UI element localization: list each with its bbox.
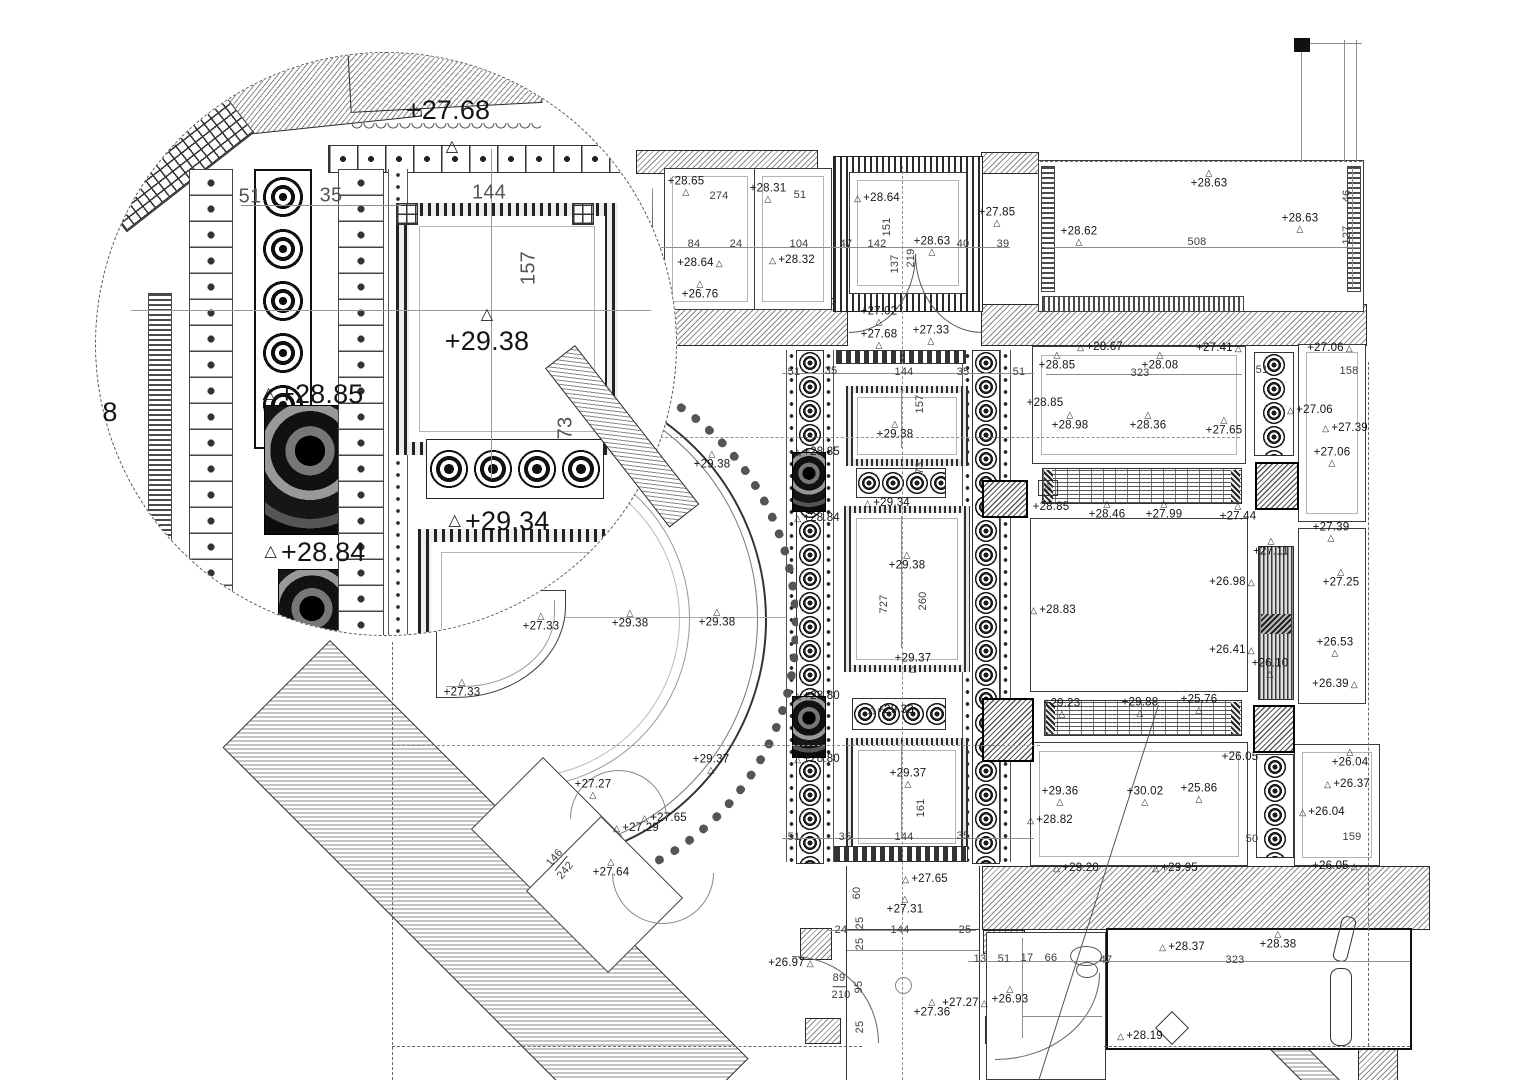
elevation-label: △+27.39	[1322, 422, 1368, 434]
label-text: +28.38	[1260, 938, 1297, 950]
dimension-label: 144	[891, 925, 910, 937]
level-triangle-icon: △	[1075, 238, 1082, 247]
label-text: 47	[840, 239, 853, 251]
label-text: +27.06	[1307, 342, 1344, 354]
elevation-label: △+29.38	[889, 550, 926, 571]
elevation-label: △+27.06	[1314, 446, 1351, 467]
elevation-label: +27.06△	[1307, 342, 1353, 354]
label-text: +26.98	[1209, 576, 1246, 588]
dimension-label: 137	[890, 255, 902, 274]
dimension-label: 323	[1226, 955, 1245, 967]
level-triangle-icon: △	[769, 256, 776, 265]
label-text: +27.06	[1296, 404, 1333, 416]
elevation-label: △+27.85	[979, 206, 1016, 227]
elevation-label: △+29.38	[694, 449, 731, 470]
level-triangle-icon: △	[1346, 747, 1353, 756]
label-text: 144	[895, 367, 914, 379]
level-triangle-icon: △	[264, 544, 277, 560]
elevation-label: △+28.32	[769, 254, 815, 266]
elevation-label: △+29.95	[1152, 862, 1198, 874]
level-triangle-icon: △	[1328, 459, 1335, 468]
elevation-label: +26.41△	[1209, 644, 1255, 656]
dimension-label: 127	[1342, 226, 1354, 245]
level-triangle-icon: △	[1077, 343, 1084, 352]
level-triangle-icon: △	[864, 499, 871, 508]
level-triangle-icon: △	[1058, 710, 1065, 719]
elevation-label: △+28.85	[262, 380, 363, 408]
dimension-label: 35	[839, 832, 852, 844]
label-text: +28.46	[1089, 508, 1126, 520]
dimension-label: 73	[556, 417, 577, 440]
level-triangle-icon: △	[716, 259, 723, 268]
label-text: +29.34	[873, 497, 910, 509]
annotation-layer: +27.68△5135144157△+29.38△+28.85△+28.84△+…	[0, 0, 1528, 1080]
elevation-label: △+27.99	[1146, 499, 1183, 520]
label-text: +26.41	[1209, 644, 1246, 656]
elevation-label: △+28.63	[914, 235, 951, 256]
dimension-label: 51	[1013, 367, 1026, 379]
elevation-label: △+28.67	[1077, 341, 1123, 353]
dimension-label: 25	[855, 1021, 867, 1034]
level-triangle-icon: △	[868, 706, 875, 715]
level-triangle-icon: △	[1195, 795, 1202, 804]
level-triangle-icon: △	[1351, 862, 1358, 871]
dimension-label: 158	[1340, 366, 1359, 378]
elevation-label: △+28.37	[1159, 941, 1205, 953]
label-text: 210	[832, 990, 851, 1002]
level-triangle-icon: △	[481, 307, 494, 323]
label-text: +26.37	[1333, 778, 1370, 790]
label-text: +29.38	[445, 327, 530, 355]
label-text: +28.63	[1191, 177, 1228, 189]
dimension-label: 161	[916, 799, 928, 818]
label-text: +28.19	[1126, 1030, 1163, 1042]
label-text: +27.33	[523, 620, 560, 632]
label-text: +29.20	[1062, 862, 1099, 874]
label-text: +26.39	[1312, 678, 1349, 690]
label-text: +28.85	[803, 446, 840, 458]
elevation-label: △+26.04	[1332, 747, 1369, 768]
label-text: +29.38	[877, 428, 914, 440]
label-text: 66	[1045, 953, 1058, 965]
level-triangle-icon: △	[1056, 798, 1063, 807]
level-triangle-icon: △	[1351, 680, 1358, 689]
elevation-label: +28.85	[1027, 397, 1064, 409]
label-text: 161	[916, 799, 928, 818]
elevation-label: △+27.33	[444, 677, 481, 698]
label-text: +28.85	[1027, 397, 1064, 409]
elevation-label: △+28.36	[1130, 410, 1167, 431]
level-triangle-icon: △	[1287, 406, 1294, 415]
level-triangle-icon: △	[1027, 816, 1034, 825]
elevation-label: △+26.76	[682, 279, 719, 300]
label-text: +28.32	[778, 254, 815, 266]
elevation-label: △+27.68	[861, 328, 898, 349]
dimension-label: 157	[519, 251, 540, 285]
elevation-label: △+27.27	[575, 778, 612, 799]
label-text: +27.99	[1146, 508, 1183, 520]
level-triangle-icon: △	[607, 857, 614, 866]
elevation-label: △+27.33	[523, 611, 560, 632]
level-triangle-icon: △	[891, 419, 898, 428]
label-text: 323	[1226, 955, 1245, 967]
level-triangle-icon: △	[904, 780, 911, 789]
elevation-label: +26.05	[1222, 751, 1259, 763]
dimension-label: 144	[895, 832, 914, 844]
level-triangle-icon: △	[928, 248, 935, 257]
dimension-label: 51	[794, 190, 807, 202]
level-triangle-icon: △	[1274, 929, 1281, 938]
elevation-label: △	[1038, 480, 1058, 496]
dimension-label: 25	[855, 917, 867, 930]
elevation-label: △+28.84	[264, 538, 365, 566]
label-text: 323	[1131, 368, 1150, 380]
elevation-label: 8	[102, 398, 117, 426]
label-text: 144	[895, 832, 914, 844]
level-triangle-icon: △	[927, 337, 934, 346]
elevation-label: △+29.38	[699, 607, 736, 628]
label-text: 25	[959, 925, 972, 937]
level-triangle-icon: △	[1038, 480, 1058, 496]
label-text: 73	[915, 462, 927, 475]
label-text: +28.67	[1086, 341, 1123, 353]
label-text: +26.76	[682, 288, 719, 300]
label-text: +26.93	[992, 993, 1029, 1005]
label-text: 95	[854, 981, 866, 994]
label-text: +26.05	[1222, 751, 1259, 763]
elevation-label: +28.85	[1033, 501, 1070, 513]
elevation-label: △+28.38	[1260, 929, 1297, 950]
label-text: 35	[839, 832, 852, 844]
dimension-label: 73	[915, 462, 927, 475]
dimension-label: 210	[832, 990, 851, 1002]
elevation-label: △+28.98	[1052, 410, 1089, 431]
label-text: +28.85	[1039, 359, 1076, 371]
label-text: 508	[1188, 237, 1207, 249]
elevation-label: △+28.63	[1191, 168, 1228, 189]
label-text: 104	[790, 239, 809, 251]
label-text: +28.80	[803, 690, 840, 702]
level-triangle-icon: △	[641, 814, 648, 823]
elevation-label: △+27.33	[913, 324, 950, 345]
label-text: 13	[974, 954, 987, 966]
level-triangle-icon: △	[1066, 410, 1073, 419]
dimension-label: 39	[997, 239, 1010, 251]
label-text: +29.34	[465, 507, 550, 535]
elevation-label: △+28.65	[668, 175, 705, 196]
elevation-label: △+27.06	[1287, 404, 1333, 416]
dimension-label: 323	[1131, 368, 1150, 380]
level-triangle-icon: △	[1337, 567, 1344, 576]
label-text: 35	[825, 366, 838, 378]
elevation-label: +26.98△	[1209, 576, 1255, 588]
elevation-label: +27.27△	[942, 997, 988, 1009]
dimension-label: 51	[998, 954, 1011, 966]
level-triangle-icon: △	[1331, 649, 1338, 658]
dimension-label: 104	[790, 239, 809, 251]
elevation-label: △+25.76	[1181, 693, 1218, 714]
elevation-label: △+26.37	[1324, 778, 1370, 790]
label-text: 144	[891, 925, 910, 937]
label-text: 157	[519, 251, 540, 285]
elevation-label: △+29.88	[1122, 696, 1159, 717]
level-triangle-icon: △	[794, 448, 801, 457]
elevation-label: △+29.34	[864, 497, 910, 509]
label-text: +28.64	[677, 257, 714, 269]
level-triangle-icon: △	[875, 341, 882, 350]
level-triangle-icon: △	[1160, 499, 1167, 508]
level-triangle-icon: △	[713, 607, 720, 616]
dimension-label: 95	[854, 981, 866, 994]
label-text: 158	[1340, 366, 1359, 378]
dimension-label: 84	[688, 239, 701, 251]
dimension-label: 144	[472, 183, 506, 204]
label-text: 51	[998, 954, 1011, 966]
level-triangle-icon: △	[1220, 415, 1227, 424]
label-text: 17	[1021, 953, 1034, 965]
level-triangle-icon: △	[1195, 706, 1202, 715]
label-text: 24	[730, 239, 743, 251]
level-triangle-icon: △	[1144, 410, 1151, 419]
dimension-label: 47	[1100, 955, 1113, 967]
level-triangle-icon: △	[1234, 501, 1241, 510]
dimension-label: 142	[868, 239, 887, 251]
elevation-label: +27.68	[406, 96, 491, 124]
label-text: 47	[1100, 955, 1113, 967]
dimension-label: 508	[1188, 237, 1207, 249]
level-triangle-icon: △	[1248, 578, 1255, 587]
elevation-label: +27.41△	[1196, 342, 1242, 354]
level-triangle-icon: △	[1248, 646, 1255, 655]
label-text: +26.04	[1332, 756, 1369, 768]
dimension-label: 51	[788, 832, 801, 844]
level-triangle-icon: △	[1053, 350, 1060, 359]
level-triangle-icon: △	[794, 692, 801, 701]
level-triangle-icon: △	[1346, 344, 1353, 353]
elevation-label: △+28.46	[1089, 499, 1126, 520]
dimension-label: 60	[852, 887, 864, 900]
level-triangle-icon: △	[1322, 424, 1329, 433]
label-text: +29.38	[612, 617, 649, 629]
label-text: +28.64	[863, 192, 900, 204]
elevation-label: △+25.86	[1181, 782, 1218, 803]
label-text: +27.27	[942, 997, 979, 1009]
label-text: +26.05	[1312, 860, 1349, 872]
level-triangle-icon: △	[993, 219, 1000, 228]
label-text: 25	[855, 1021, 867, 1034]
elevation-label: △+28.84	[794, 512, 840, 524]
label-text: 127	[1342, 226, 1354, 245]
elevation-label: △+29.38	[445, 307, 530, 355]
elevation-label: △+27.65	[641, 812, 687, 824]
label-text: 151	[882, 218, 894, 237]
label-text: +26.04	[1308, 806, 1345, 818]
level-triangle-icon: △	[902, 875, 909, 884]
label-text: +27.65	[650, 812, 687, 824]
level-triangle-icon: △	[1103, 499, 1110, 508]
label-text: 46	[1342, 190, 1354, 203]
level-triangle-icon: △	[875, 318, 882, 327]
elevation-label: △+26.53	[1317, 636, 1354, 657]
level-triangle-icon: △	[1117, 1032, 1124, 1041]
level-triangle-icon: △	[1141, 798, 1148, 807]
elevation-label: △+29.34	[448, 507, 549, 535]
level-triangle-icon: △	[794, 514, 801, 523]
level-triangle-icon: △	[854, 194, 861, 203]
level-triangle-icon: △	[1327, 534, 1334, 543]
dimension-label: 151	[882, 218, 894, 237]
label-text: +28.85	[279, 380, 364, 408]
dimension-label: 13	[974, 954, 987, 966]
label-text: +28.37	[1168, 941, 1205, 953]
label-text: +27.39	[1331, 422, 1368, 434]
label-text: 35	[320, 186, 343, 207]
level-triangle-icon: △	[901, 894, 908, 903]
level-triangle-icon: △	[1159, 943, 1166, 952]
elevation-label: △+28.19	[1117, 1030, 1163, 1042]
label-text: 157	[915, 395, 927, 414]
label-text: +28.84	[803, 512, 840, 524]
dimension-label: 51	[1256, 365, 1269, 377]
label-text: +28.84	[281, 538, 366, 566]
elevation-label: △+27.02	[861, 305, 898, 326]
dimension-label: 40	[957, 239, 970, 251]
dimension-label: 144	[895, 367, 914, 379]
elevation-label: +26.97△	[768, 957, 814, 969]
level-triangle-icon: △	[613, 824, 620, 833]
label-text: 8	[102, 398, 117, 426]
dimension-label: 157	[915, 395, 927, 414]
dimension-label: 219	[906, 249, 918, 268]
level-triangle-icon: △	[1156, 350, 1163, 359]
label-text: +28.36	[1130, 419, 1167, 431]
label-text: 274	[710, 191, 729, 203]
elevation-label: △+26.93	[992, 984, 1029, 1005]
label-text: 144	[472, 183, 506, 204]
label-text: 142	[868, 239, 887, 251]
elevation-label: △+27.39	[1313, 521, 1350, 542]
label-text: +29.38	[694, 458, 731, 470]
label-text: +27.31	[887, 903, 924, 915]
label-text: 24	[835, 925, 848, 937]
level-triangle-icon: △	[708, 449, 715, 458]
label-text: +29.38	[889, 559, 926, 571]
label-text: +28.98	[1052, 419, 1089, 431]
level-triangle-icon: △	[1136, 709, 1143, 718]
label-text: 51	[1013, 367, 1026, 379]
label-text: +27.41	[1196, 342, 1233, 354]
ceiling-plan-drawing: +27.68△5135144157△+29.38△+28.85△+28.84△+…	[0, 0, 1528, 1080]
level-triangle-icon: △	[589, 791, 596, 800]
elevation-label: +26.05△	[1312, 860, 1358, 872]
level-triangle-icon: △	[682, 188, 689, 197]
label-text: +28.83	[1039, 604, 1076, 616]
dimension-label: 24	[835, 925, 848, 937]
dimension-label: 47	[840, 239, 853, 251]
elevation-label: △	[446, 139, 459, 155]
dimension-label: 51	[788, 367, 801, 379]
elevation-label: △+29.37	[890, 767, 927, 788]
label-text: +27.68	[406, 96, 491, 124]
label-text: +27.64	[593, 866, 630, 878]
dimension-label: 260	[918, 592, 930, 611]
level-triangle-icon: △	[794, 755, 801, 764]
elevation-label: △+27.11	[1253, 536, 1289, 557]
elevation-label: △+28.31	[750, 182, 787, 203]
level-triangle-icon: △	[1267, 536, 1274, 545]
elevation-label: △+28.85	[1039, 350, 1076, 371]
level-triangle-icon: △	[262, 386, 275, 402]
label-text: +27.11	[1253, 545, 1289, 557]
label-text: 50	[1246, 834, 1259, 846]
elevation-label: △+29.23	[1044, 697, 1081, 718]
dimension-label: 35	[825, 366, 838, 378]
label-text: 51	[1256, 365, 1269, 377]
elevation-label: △+28.82	[1027, 814, 1073, 826]
label-text: +27.33	[444, 686, 481, 698]
elevation-label: △+27.65	[902, 873, 948, 885]
elevation-label: △+28.83	[1030, 604, 1076, 616]
level-triangle-icon: △	[696, 279, 703, 288]
level-triangle-icon: △	[707, 766, 714, 775]
dimension-label: 35	[320, 186, 343, 207]
elevation-label: △+28.64	[854, 192, 900, 204]
elevation-label: △+28.62	[1061, 225, 1098, 246]
label-text: +26.97	[768, 957, 805, 969]
level-triangle-icon: △	[1152, 864, 1159, 873]
elevation-label: △+29.37	[895, 652, 932, 673]
dimension-label: 25	[959, 925, 972, 937]
level-triangle-icon: △	[764, 195, 771, 204]
label-text: 51	[788, 367, 801, 379]
label-text: 89	[833, 973, 846, 987]
label-text: +29.38	[699, 616, 736, 628]
level-triangle-icon: △	[1235, 344, 1242, 353]
elevation-label: +26.39△	[1312, 678, 1358, 690]
elevation-label: △+28.80	[794, 753, 840, 765]
label-text: 219	[906, 249, 918, 268]
elevation-label: △+27.44	[1220, 501, 1257, 522]
label-text: +27.65	[911, 873, 948, 885]
label-text: 159	[1343, 832, 1362, 844]
level-triangle-icon: △	[1296, 225, 1303, 234]
level-triangle-icon: △	[1030, 606, 1037, 615]
label-text: 25	[855, 938, 867, 951]
label-text: 260	[918, 592, 930, 611]
elevation-label: △+27.64	[593, 857, 630, 878]
level-triangle-icon: △	[626, 608, 633, 617]
level-triangle-icon: △	[446, 139, 459, 155]
level-triangle-icon: △	[1266, 670, 1273, 679]
label-text: +27.65	[1206, 424, 1243, 436]
label-text: 51	[239, 187, 262, 208]
level-triangle-icon: △	[1053, 864, 1060, 873]
label-text: 35	[957, 831, 970, 843]
elevation-label: △+28.63	[1282, 212, 1319, 233]
dimension-label: 274	[710, 191, 729, 203]
label-text: +27.44	[1220, 510, 1257, 522]
elevation-label: △+29.36	[1042, 785, 1079, 806]
level-triangle-icon: △	[537, 611, 544, 620]
label-text: 73	[556, 417, 577, 440]
label-text: 84	[688, 239, 701, 251]
dimension-label: 35	[957, 367, 970, 379]
level-triangle-icon: △	[448, 513, 461, 529]
level-triangle-icon: △	[1324, 780, 1331, 789]
dimension-label: 66	[1045, 953, 1058, 965]
dimension-label: 24	[730, 239, 743, 251]
dimension-label: 50	[1246, 834, 1259, 846]
